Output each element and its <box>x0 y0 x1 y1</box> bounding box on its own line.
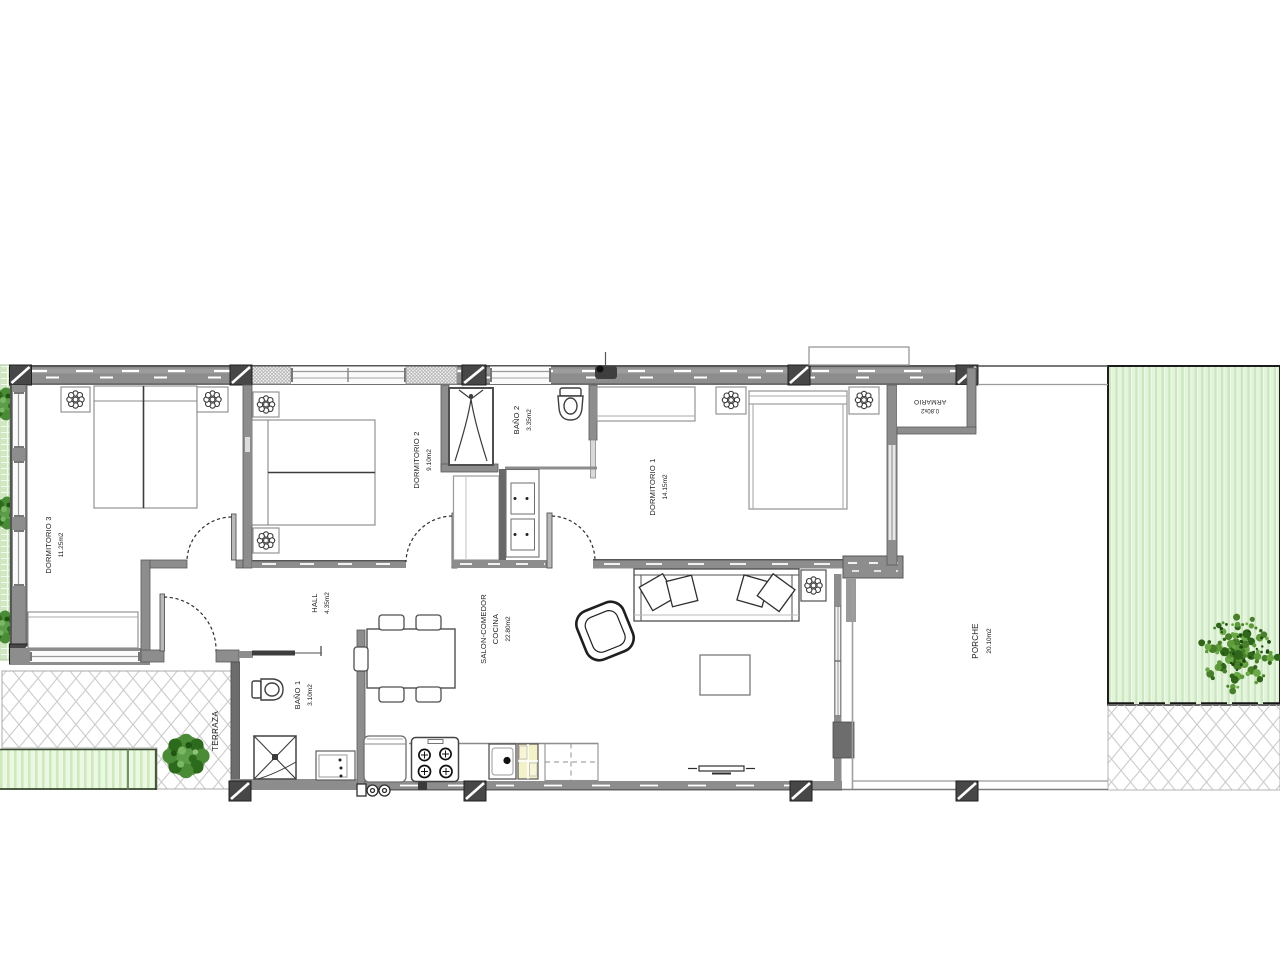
svg-text:0.80x2: 0.80x2 <box>920 407 939 413</box>
svg-text:11.25m2: 11.25m2 <box>58 532 65 557</box>
svg-text:3.35m2: 3.35m2 <box>526 409 533 431</box>
svg-text:DORMITORIO 3: DORMITORIO 3 <box>44 516 53 573</box>
svg-text:20.10m2: 20.10m2 <box>986 628 993 654</box>
svg-text:TERRAZA: TERRAZA <box>211 711 220 751</box>
svg-text:COCINA: COCINA <box>491 614 500 644</box>
svg-text:SALON-COMEDOR: SALON-COMEDOR <box>479 594 488 664</box>
svg-text:HALL: HALL <box>310 593 319 613</box>
svg-text:9.10m2: 9.10m2 <box>426 449 433 471</box>
svg-text:DORMITORIO 2: DORMITORIO 2 <box>412 431 421 488</box>
svg-text:DORMITORIO 1: DORMITORIO 1 <box>648 458 657 515</box>
svg-text:PORCHE: PORCHE <box>971 623 980 658</box>
svg-text:4.35m2: 4.35m2 <box>324 592 331 614</box>
svg-text:14.15m2: 14.15m2 <box>662 474 669 500</box>
svg-text:22.80m2: 22.80m2 <box>505 616 512 642</box>
svg-text:3.10m2: 3.10m2 <box>307 684 314 706</box>
svg-text:BAÑO 2: BAÑO 2 <box>512 406 521 435</box>
svg-text:BAÑO 1: BAÑO 1 <box>293 681 302 710</box>
svg-text:ARMARIO: ARMARIO <box>914 398 946 405</box>
